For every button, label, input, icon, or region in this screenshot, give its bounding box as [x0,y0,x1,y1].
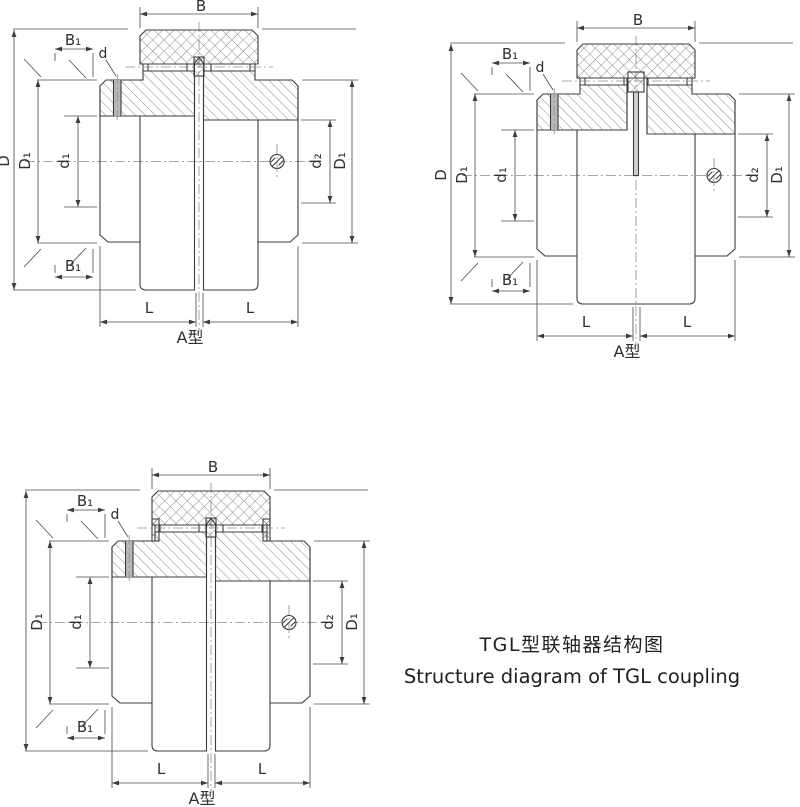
caption-chinese: TGL型联轴器结构图 [372,630,772,657]
dim-label-D1-left: D₁ [16,152,34,170]
dim-label-B1-top: B₁ [65,31,81,49]
dim-label-L-right: L [258,760,267,778]
hub-flange-right [647,85,735,134]
coupling-section-top-right-with-spacer: BDD₁d₁d₂D₁B₁B₁dLLA型 [432,11,795,361]
dim-label-L-left: L [582,313,591,331]
hub-flange-right [204,71,299,120]
dim-label-d2: d₂ [319,614,337,630]
dim-label-D1-right: D₁ [768,166,786,184]
dim-label-B: B [196,0,206,15]
dim-label-D: D [0,155,13,167]
dim-label-B1-top: B₁ [77,492,93,510]
coupling-section-bottom-left-with-end-plates: BD₁d₁d₂D₁B₁B₁dLLA型 [24,458,370,807]
type-label: A型 [614,342,641,361]
dim-label-L-left: L [145,299,154,317]
sleeve-center-tongue [194,57,204,76]
figure-caption: TGL型联轴器结构图 Structure diagram of TGL coup… [372,630,772,688]
dim-label-L-left: L [157,760,166,778]
center-spacer-disc [634,92,639,176]
dim-label-B1-bottom: B₁ [65,257,81,275]
center-spacer-block [628,72,644,92]
dim-label-d: d [111,507,120,523]
dim-label-D1-right: D₁ [343,613,361,631]
hub-flange-right [216,532,311,581]
dim-label-d1: d₁ [67,614,85,630]
dim-label-D1-left: D₁ [453,166,471,184]
dim-label-d1: d₁ [55,153,73,169]
drawing-sheet: BDD₁d₁d₂D₁B₁B₁dLLA型BDD₁d₁d₂D₁B₁B₁dLLA型BD… [0,0,800,807]
type-label: A型 [189,789,216,807]
dim-label-B1-bottom: B₁ [502,271,518,289]
dim-label-B1-bottom: B₁ [77,718,93,736]
caption-english: Structure diagram of TGL coupling [372,665,772,688]
dim-label-D1-left: D₁ [28,613,46,631]
dim-label-B: B [208,458,218,476]
dim-label-D1-right: D₁ [331,152,349,170]
type-label: A型 [177,328,204,347]
dim-label-d: d [99,46,108,62]
dim-label-L-right: L [246,299,255,317]
dim-label-B1-top: B₁ [502,45,518,63]
dim-label-d2: d₂ [307,153,325,169]
dim-label-d: d [536,60,545,76]
dim-label-d2: d₂ [744,167,762,183]
dim-label-D: D [432,169,450,181]
dim-label-B: B [633,11,643,29]
coupling-section-top-left: BDD₁d₁d₂D₁B₁B₁dLLA型 [0,0,358,347]
dim-label-d1: d₁ [492,167,510,183]
sleeve-center-tongue [206,518,216,537]
dim-label-L-right: L [683,313,692,331]
